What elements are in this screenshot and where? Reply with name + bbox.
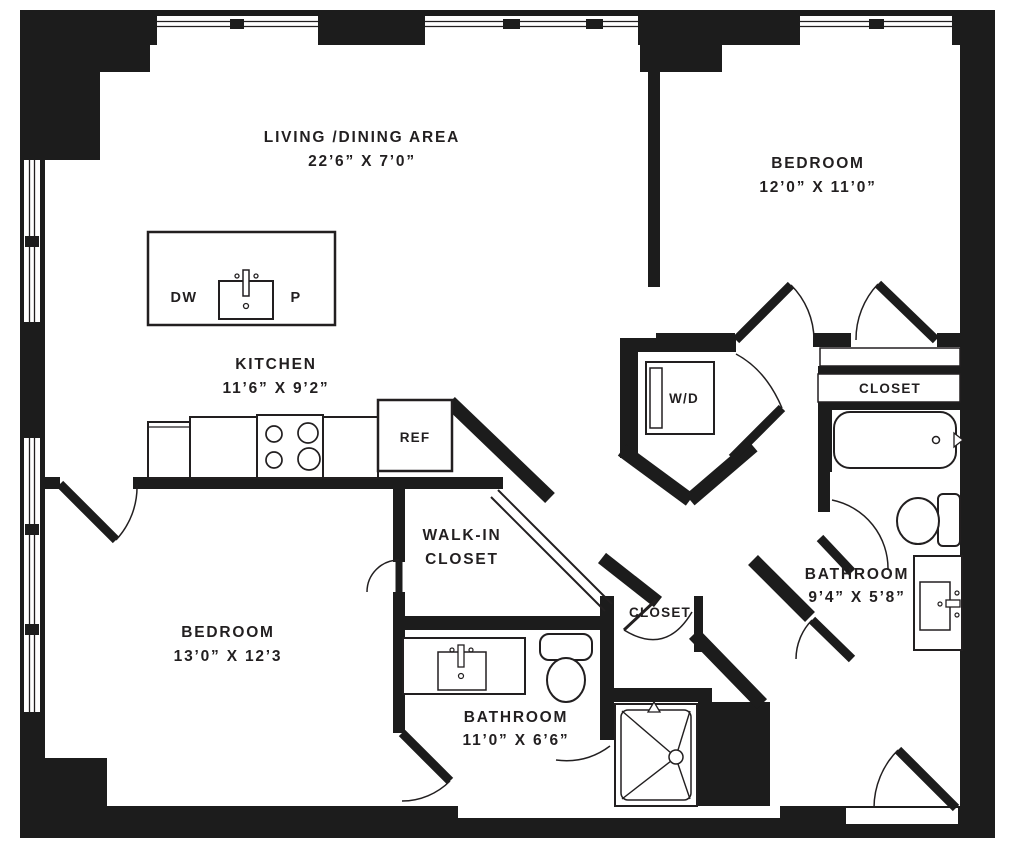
door-closet-top-right	[856, 284, 936, 340]
bedroom-top-right-dims: 12’0” X 11’0”	[759, 179, 876, 196]
wall-closetTR-lower-band	[818, 402, 962, 410]
wall-wd-v-right	[690, 446, 753, 500]
bathroom-bottom-dims: 11’0” X 6’6”	[463, 732, 570, 749]
window-top-left	[157, 16, 318, 45]
window-top-right	[800, 16, 952, 45]
door-bathroom-right-entry	[796, 620, 852, 659]
walkin-closet-line1: WALK-IN	[423, 527, 502, 544]
door-bathroom-right-inner	[820, 500, 888, 572]
dishwasher-label: DW	[171, 290, 198, 306]
floor-plan: DW P REF W/D CLOSET	[0, 0, 1012, 850]
bathtub	[834, 412, 956, 468]
toilet-bowl-bottom	[547, 658, 585, 702]
window-top-center	[425, 16, 638, 45]
wall-wd-v-left	[622, 450, 690, 500]
bottom-wall-recess	[458, 806, 780, 818]
kitchen-name: KITCHEN	[235, 356, 317, 373]
wall-tub-left	[818, 408, 832, 472]
kitchen-fixtures: DW P REF	[148, 232, 452, 478]
bathroom-right-fixtures	[834, 412, 963, 650]
corner-bottom-left	[45, 758, 107, 806]
walkin-shelf-line2	[491, 497, 605, 611]
bathroom-bottom-fixtures	[403, 634, 592, 702]
windows	[24, 16, 952, 712]
door-entry	[874, 750, 956, 808]
window-left-lower	[24, 438, 40, 712]
bathroom-bottom-name: BATHROOM	[464, 709, 569, 726]
door-wd-closet	[732, 354, 782, 458]
wall-wd-left	[620, 338, 638, 458]
wall-left	[20, 10, 45, 838]
door-bedroom1	[736, 285, 814, 340]
kitchen-island: DW P	[148, 232, 335, 325]
wall-right	[960, 10, 995, 838]
wall-walkin-left-upper	[393, 489, 405, 562]
pantry-label: P	[290, 290, 301, 306]
living-room-name: LIVING /DINING AREA	[264, 129, 460, 146]
door-bedroom2	[60, 484, 137, 540]
toilet-tank-bottom	[540, 634, 592, 660]
bedroom-bottom-left-dims: 13’0” X 12’3	[174, 648, 283, 665]
door-bathroom-bottom	[402, 733, 450, 801]
closet-shelf	[820, 348, 960, 366]
wall-entry-block	[698, 702, 770, 806]
wall-bathroomB-right	[600, 596, 614, 740]
wall-closetC-diagonal	[602, 558, 658, 602]
toilet-tank-right	[938, 494, 960, 546]
wall-closetC-right	[694, 596, 703, 652]
bathroom-right-dims: 9’4” X 5’8”	[808, 589, 905, 606]
refrigerator-label: REF	[400, 430, 431, 445]
wall-closetTR-upper-band	[818, 366, 962, 374]
closet-center-label: CLOSET	[629, 605, 691, 620]
wall-bathroomR-left	[818, 472, 830, 512]
bedroom-bottom-left-name: BEDROOM	[181, 624, 275, 641]
wall-vestibule-b	[813, 333, 851, 347]
kitchen-dims: 11’6” X 9’2”	[223, 380, 330, 397]
faucet-right	[946, 600, 960, 607]
island-faucet	[243, 270, 249, 296]
shower	[615, 702, 697, 806]
walkin-shelf-line1	[498, 490, 612, 604]
closet-top-right: CLOSET	[818, 348, 960, 402]
corner-top-left-b	[45, 45, 100, 160]
door-walkin-from-bedroom	[367, 560, 399, 592]
wall-living-bedroom-divider	[648, 45, 660, 287]
wd-closet: W/D	[646, 362, 714, 434]
wall-shower-top	[600, 688, 712, 702]
toilet-bowl-right	[897, 498, 939, 544]
entry-threshold	[846, 808, 958, 824]
bathroom-right-name: BATHROOM	[805, 566, 910, 583]
wall-bathroomB-top	[393, 616, 614, 630]
window-left-upper	[24, 160, 40, 322]
wall-vestibule-c	[937, 333, 962, 347]
washer-dryer-label: W/D	[669, 391, 699, 406]
closet-top-right-label: CLOSET	[859, 381, 921, 396]
shower-drain	[669, 750, 683, 764]
bedroom-top-right-name: BEDROOM	[771, 155, 865, 172]
wall-hall-diagonal	[753, 560, 810, 617]
kitchen-counter: REF	[148, 400, 452, 478]
walkin-closet-line2: CLOSET	[425, 551, 499, 568]
wall-wd-top	[620, 338, 736, 352]
living-room-dims: 22’6” X 7’0”	[308, 153, 416, 170]
floor-plan-svg: DW P REF W/D CLOSET	[0, 0, 1012, 850]
faucet-bottom	[458, 645, 464, 667]
